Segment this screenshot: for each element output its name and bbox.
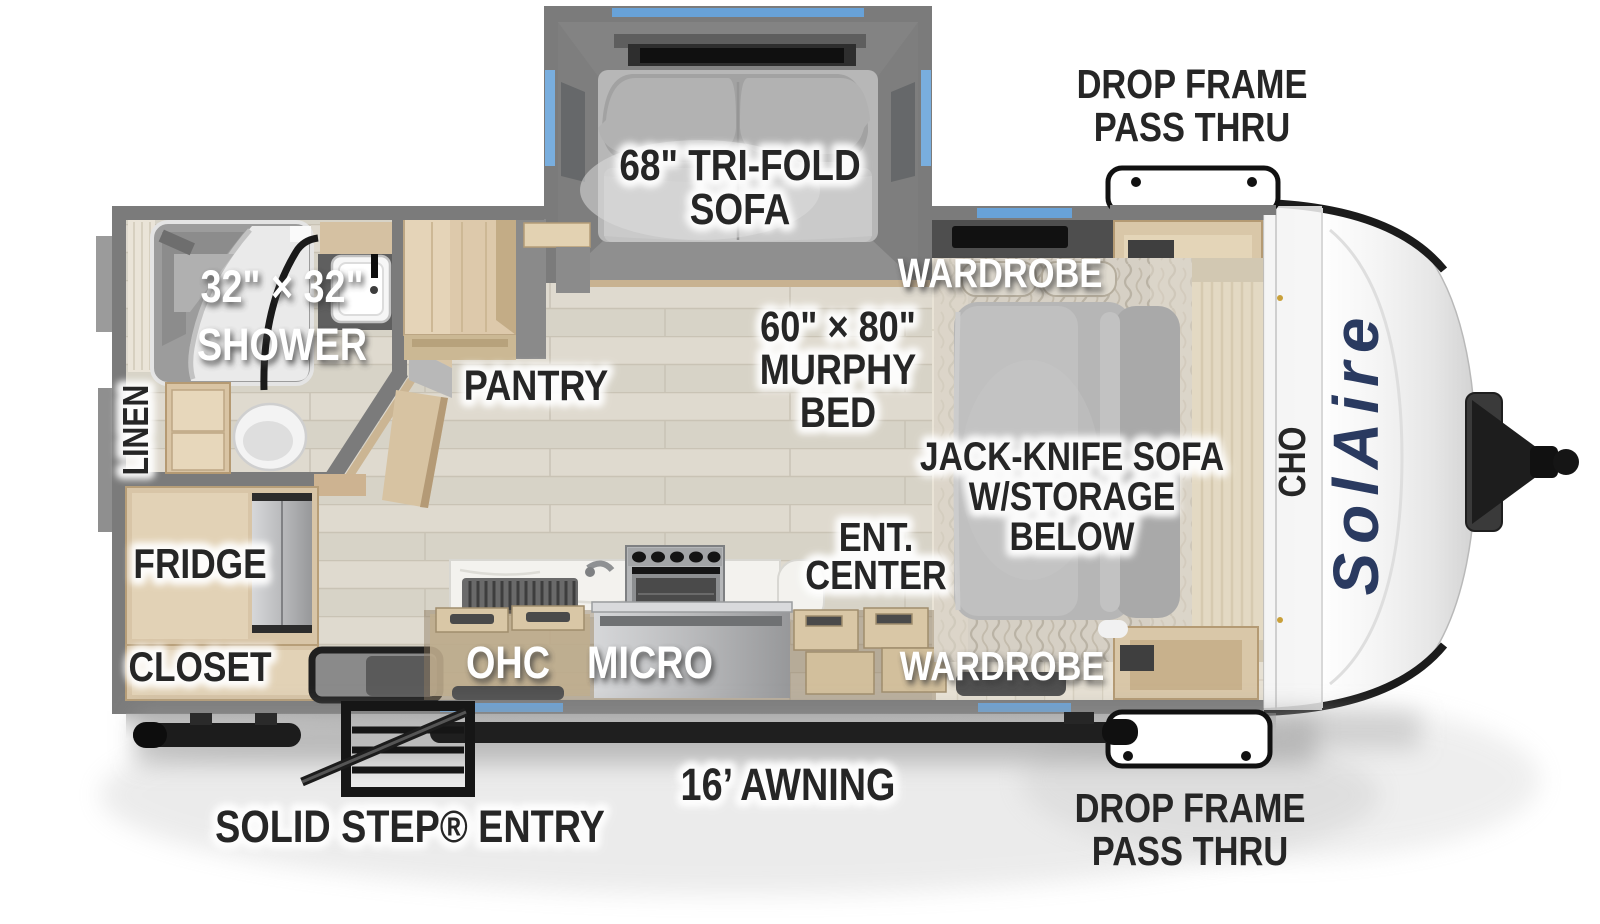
svg-text:CLOSET: CLOSET: [128, 644, 271, 691]
svg-text:FRIDGE: FRIDGE: [133, 541, 266, 588]
svg-text:CHO: CHO: [1271, 427, 1313, 498]
svg-text:LINEN: LINEN: [117, 385, 157, 476]
svg-text:BELOW: BELOW: [1009, 514, 1134, 558]
svg-text:SOLID STEP® ENTRY: SOLID STEP® ENTRY: [215, 801, 605, 852]
svg-text:BED: BED: [800, 389, 876, 437]
svg-text:68" TRI-FOLD: 68" TRI-FOLD: [619, 140, 860, 190]
svg-text:WARDROBE: WARDROBE: [898, 251, 1103, 296]
svg-text:WARDROBE: WARDROBE: [900, 644, 1105, 689]
svg-text:JACK-KNIFE SOFA: JACK-KNIFE SOFA: [920, 434, 1224, 478]
svg-text:60" × 80": 60" × 80": [760, 303, 916, 351]
svg-text:16’ AWNING: 16’ AWNING: [681, 759, 896, 810]
svg-text:PASS THRU: PASS THRU: [1092, 829, 1288, 874]
svg-text:PASS THRU: PASS THRU: [1094, 105, 1290, 150]
svg-text:32" × 32": 32" × 32": [201, 261, 364, 312]
svg-text:SOFA: SOFA: [690, 184, 791, 234]
svg-text:SolAire: SolAire: [1320, 308, 1392, 595]
svg-text:MURPHY: MURPHY: [760, 346, 916, 394]
svg-text:SHOWER: SHOWER: [197, 319, 367, 370]
svg-text:OHC: OHC: [466, 637, 550, 688]
svg-text:W/STORAGE: W/STORAGE: [969, 474, 1175, 518]
svg-text:DROP FRAME: DROP FRAME: [1075, 786, 1306, 831]
svg-text:PANTRY: PANTRY: [464, 362, 608, 410]
svg-text:CENTER: CENTER: [805, 553, 947, 598]
svg-text:MICRO: MICRO: [587, 637, 713, 688]
svg-text:DROP FRAME: DROP FRAME: [1077, 62, 1308, 107]
